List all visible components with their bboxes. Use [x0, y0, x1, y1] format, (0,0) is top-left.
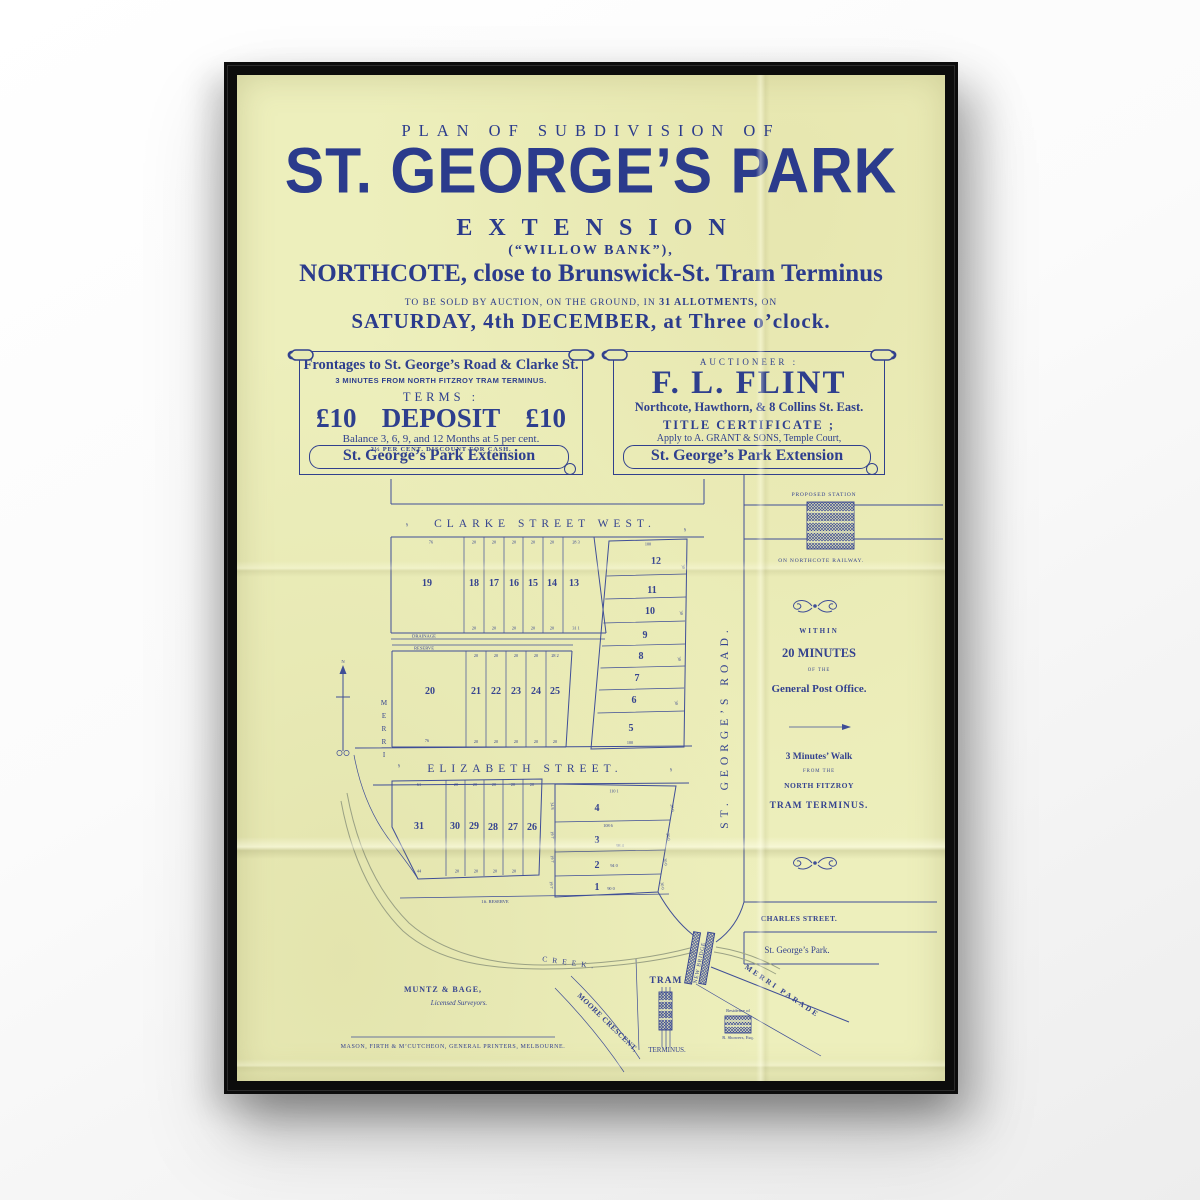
- svg-text:34 8: 34 8: [550, 802, 556, 810]
- svg-text:19 7: 19 7: [549, 881, 555, 889]
- svg-text:20: 20: [534, 653, 538, 658]
- deposit-amount-left: £10: [316, 403, 357, 434]
- lot-13: 13: [569, 578, 579, 589]
- svg-text:20: 20: [455, 869, 459, 874]
- flourish-ornament: [794, 857, 837, 869]
- auctioneer-banner: AUCTIONEER : F. L. FLINT Northcote, Hawt…: [613, 351, 885, 475]
- map-footer: MUNTZ & BAGE, Licensed Surveyors. MASON,…: [341, 985, 566, 1050]
- within-label: WITHIN: [799, 627, 839, 635]
- svg-text:20: 20: [530, 782, 534, 787]
- lot-31: 31: [414, 821, 424, 832]
- svg-text:30 0: 30 0: [659, 882, 665, 890]
- frontages-line: Frontages to St. George’s Road & Clarke …: [300, 357, 582, 374]
- svg-text:20: 20: [531, 540, 535, 545]
- svg-text:20 0: 20 0: [665, 833, 671, 841]
- right-panel: WITHIN 20 MINUTES OF THE General Post Of…: [770, 627, 869, 811]
- lot-14: 14: [547, 578, 557, 589]
- lot-21: 21: [471, 686, 481, 697]
- svg-text:30: 30: [674, 700, 680, 705]
- section-mark: §: [406, 522, 408, 527]
- apply-line: Apply to A. GRANT & SONS, Temple Court,: [614, 433, 884, 444]
- lot-20: 20: [425, 686, 435, 697]
- tram-track-symbol: [659, 992, 672, 1030]
- svg-text:20: 20: [492, 782, 496, 787]
- lot-19: 19: [422, 578, 432, 589]
- svg-text:98 4: 98 4: [616, 843, 624, 848]
- svg-text:20: 20: [534, 739, 538, 744]
- svg-text:19 7: 19 7: [550, 855, 556, 863]
- lot-22: 22: [491, 686, 501, 697]
- gpo-label: General Post Office.: [772, 683, 867, 695]
- svg-text:20: 20: [514, 739, 518, 744]
- terms-banner: Frontages to St. George’s Road & Clarke …: [299, 351, 583, 475]
- svg-text:28 2: 28 2: [551, 653, 558, 658]
- ribbon-curl-icon: [564, 463, 576, 475]
- north-arrow: N: [336, 659, 350, 756]
- street-clarke: CLARKE STREET WEST.: [434, 518, 656, 530]
- svg-text:20: 20: [514, 653, 518, 658]
- svg-text:20: 20: [512, 626, 516, 631]
- merri-creek-label: MERRI: [381, 699, 388, 759]
- lot-7: 7: [635, 673, 640, 684]
- svg-text:61: 61: [417, 782, 421, 787]
- street-merri-parade: MERRI PARADE: [743, 962, 821, 1019]
- arrow-divider: [789, 724, 851, 730]
- lot-28: 28: [488, 822, 498, 833]
- street-st-georges-road: ST. GEORGE’S ROAD.: [719, 625, 731, 829]
- poster-subtitle: EXTENSION: [237, 215, 945, 242]
- lot-4: 4: [595, 803, 600, 814]
- on-railway-label: ON NORTHCOTE RAILWAY.: [778, 558, 864, 564]
- street-elizabeth: ELIZABETH STREET.: [427, 763, 622, 775]
- svg-text:76: 76: [429, 540, 433, 545]
- park-label: St. George’s Park.: [764, 945, 829, 955]
- title-certificate-line: TITLE CERTIFICATE ;: [614, 418, 884, 433]
- svg-text:20 0: 20 0: [662, 858, 668, 866]
- lot-3: 3: [595, 835, 600, 846]
- svg-text:20: 20: [494, 739, 498, 744]
- surveyors-name: MUNTZ & BAGE,: [404, 985, 482, 994]
- scroll-curl-icon: [565, 345, 595, 365]
- section-mark: §: [684, 527, 686, 532]
- street-charles: CHARLES STREET.: [761, 914, 838, 923]
- auction-post: ON: [761, 298, 777, 308]
- auction-pre: TO BE SOLD BY AUCTION, ON THE GROUND, IN: [405, 298, 656, 308]
- picture-frame: PLAN OF SUBDIVISION OF ST. GEORGE’S PARK…: [224, 62, 958, 1094]
- svg-text:100: 100: [645, 542, 651, 547]
- proposed-station-label: PROPOSED STATION: [792, 492, 857, 498]
- lot-dimensions: 76 20 20 20 20 20 28 3 20 20 20 20 20 31…: [417, 540, 686, 892]
- tram-label: TRAM: [649, 976, 682, 986]
- lot-6: 6: [632, 695, 637, 706]
- svg-text:20: 20: [531, 626, 535, 631]
- lot-11: 11: [647, 585, 656, 596]
- svg-text:110 1: 110 1: [609, 789, 618, 794]
- subdivision-poster: PLAN OF SUBDIVISION OF ST. GEORGE’S PARK…: [237, 75, 945, 1081]
- svg-text:20: 20: [512, 869, 516, 874]
- auction-allotments: 31 ALLOTMENTS,: [659, 297, 758, 308]
- tram-minutes-line: 3 MINUTES FROM NORTH FITZROY TRAM TERMIN…: [300, 376, 582, 385]
- svg-text:44: 44: [417, 869, 422, 874]
- subdivision-map: N CLARKE STREET WEST. ELIZABETH STREET. …: [237, 475, 945, 1079]
- ribbon-right-label: St. George’s Park Extension: [651, 447, 843, 464]
- svg-text:28 3: 28 3: [572, 540, 579, 545]
- railway-station-symbol: [807, 502, 854, 549]
- ribbon-right: St. George’s Park Extension: [623, 445, 871, 469]
- lot-23: 23: [511, 686, 521, 697]
- north-label: N: [341, 659, 345, 664]
- svg-text:20: 20: [474, 869, 478, 874]
- scroll-curl-icon: [867, 345, 897, 365]
- svg-text:30: 30: [677, 656, 683, 661]
- lot-27: 27: [508, 822, 518, 833]
- lot-25: 25: [550, 686, 560, 697]
- svg-text:108 6: 108 6: [603, 823, 612, 828]
- lot-17: 17: [489, 578, 499, 589]
- auctioneer-address: Northcote, Hawthorn, & 8 Collins St. Eas…: [614, 400, 884, 415]
- svg-text:20: 20: [550, 540, 554, 545]
- lot-10: 10: [645, 606, 655, 617]
- lot-16: 16: [509, 578, 519, 589]
- merri-creek-lines: [341, 793, 780, 974]
- residence-symbol: [725, 1016, 751, 1033]
- north-fitzroy-label: NORTH FITZROY: [784, 781, 854, 790]
- ft-reserve-label: 1ft. RESERVE: [481, 899, 509, 904]
- section-mark: §: [398, 763, 400, 768]
- lot-30: 30: [450, 821, 460, 832]
- svg-text:28 0: 28 0: [669, 804, 675, 812]
- printer-line: MASON, FIRTH & M’CUTCHEON, GENERAL PRINT…: [341, 1044, 566, 1050]
- lot-2: 2: [595, 860, 600, 871]
- residence-of-label: Residence of: [726, 1008, 750, 1013]
- auction-date-line: SATURDAY, 4th DECEMBER, at Three o’clock…: [237, 309, 945, 334]
- lot-1: 1: [595, 882, 600, 893]
- svg-text:76: 76: [425, 738, 429, 743]
- ribbon-left: St. George’s Park Extension: [309, 445, 569, 469]
- svg-text:31 1: 31 1: [572, 626, 579, 631]
- svg-text:20: 20: [472, 540, 476, 545]
- section-mark: §: [670, 767, 672, 772]
- deposit-line: £10 DEPOSIT £10: [300, 403, 582, 434]
- lot-9: 9: [643, 630, 648, 641]
- deposit-amount-right: £10: [525, 403, 566, 434]
- terminus-label: TERMINUS.: [648, 1046, 686, 1054]
- svg-text:20: 20: [472, 626, 476, 631]
- svg-text:20: 20: [494, 653, 498, 658]
- lot-5: 5: [629, 723, 634, 734]
- lot-26: 26: [527, 822, 537, 833]
- flourish-ornament: [794, 600, 837, 612]
- street-moore-crescent: MOORE CRESCENT,: [576, 991, 640, 1054]
- deposit-word: DEPOSIT: [382, 403, 501, 434]
- svg-text:20: 20: [473, 782, 477, 787]
- from-the-label: FROM THE: [803, 769, 835, 774]
- of-the-label: OF THE: [808, 668, 831, 673]
- lot-18: 18: [469, 578, 479, 589]
- auction-line: TO BE SOLD BY AUCTION, ON THE GROUND, IN…: [237, 297, 945, 308]
- lot-24: 24: [531, 686, 541, 697]
- svg-text:20: 20: [474, 739, 478, 744]
- location-line: NORTHCOTE, close to Brunswick-St. Tram T…: [237, 260, 945, 288]
- wall: PLAN OF SUBDIVISION OF ST. GEORGE’S PARK…: [0, 0, 1200, 1200]
- scroll-curl-icon: [287, 345, 317, 365]
- surveyors-title: Licensed Surveyors.: [430, 999, 488, 1007]
- svg-text:30: 30: [681, 564, 687, 569]
- walk-label: 3 Minutes’ Walk: [786, 752, 853, 762]
- svg-text:20: 20: [454, 782, 458, 787]
- ribbon-curl-icon: [866, 463, 878, 475]
- svg-text:20: 20: [550, 626, 554, 631]
- tram-terminus-label: TRAM TERMINUS.: [770, 801, 869, 811]
- svg-text:20: 20: [492, 540, 496, 545]
- svg-text:20: 20: [553, 739, 557, 744]
- drainage-label: DRAINAGE: [412, 634, 436, 639]
- svg-text:20: 20: [512, 540, 516, 545]
- svg-text:20: 20: [474, 653, 478, 658]
- lot-numbers: 19 18 17 16 15 14 13 20 21 22 23 24 25 1…: [414, 556, 661, 893]
- alt-name-line: (“WILLOW BANK”),: [237, 243, 945, 259]
- lot-29: 29: [469, 821, 479, 832]
- minutes-label: 20 MINUTES: [782, 646, 856, 660]
- residence-name-label: R. Showers, Esq.: [722, 1035, 754, 1041]
- svg-text:90 0: 90 0: [607, 886, 614, 891]
- reserve-label: RESERVE: [414, 646, 434, 651]
- svg-text:20: 20: [511, 782, 515, 787]
- svg-text:30: 30: [679, 610, 685, 615]
- lot-12: 12: [651, 556, 661, 567]
- scroll-curl-icon: [601, 345, 631, 365]
- svg-text:20: 20: [492, 626, 496, 631]
- svg-text:20: 20: [493, 869, 497, 874]
- lot-15: 15: [528, 578, 538, 589]
- svg-text:94 0: 94 0: [610, 863, 617, 868]
- svg-text:100: 100: [627, 740, 633, 745]
- auctioneer-name: F. L. FLINT: [614, 365, 884, 402]
- svg-text:19 7: 19 7: [550, 831, 556, 839]
- balance-line: Balance 3, 6, 9, and 12 Months at 5 per …: [300, 433, 582, 445]
- lot-8: 8: [639, 651, 644, 662]
- ribbon-left-label: St. George’s Park Extension: [343, 447, 535, 464]
- poster-title: ST. GEORGE’S PARK: [237, 134, 945, 207]
